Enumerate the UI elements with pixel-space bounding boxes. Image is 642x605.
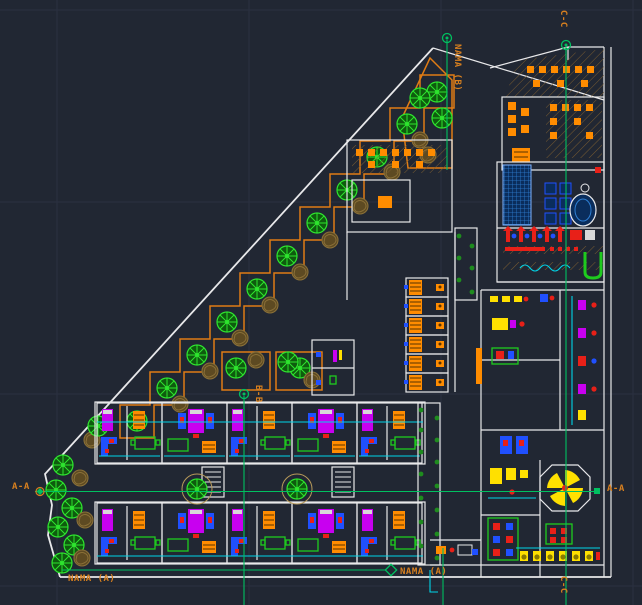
pool-area: [497, 162, 604, 282]
cad-viewport[interactable]: A-A A-A B-B C-C C-C NAMA (B) NAMA (A) NA…: [0, 0, 642, 605]
label-nama-a-left: NAMA (A): [68, 574, 115, 584]
bath-stack: [572, 296, 597, 425]
label-section-cc-top: C-C: [558, 10, 568, 28]
jacuzzi: [570, 167, 601, 226]
apartment-block: [95, 402, 425, 564]
label-section-bb: B-B: [253, 385, 263, 403]
restaurant-block: [502, 49, 604, 170]
kitchen: [488, 468, 536, 498]
spa-octagon: [540, 465, 590, 511]
mid-building: [312, 140, 455, 395]
toilet-row: [516, 548, 600, 561]
service-wing: [430, 290, 604, 577]
label-section-cc-bottom: C-C: [558, 576, 568, 594]
drawing-canvas[interactable]: A-A A-A B-B C-C C-C NAMA (B) NAMA (A) NA…: [0, 0, 642, 605]
small-rooms-west: [312, 340, 354, 395]
label-section-aa-right: A-A: [607, 484, 625, 494]
label-nama-a-mid: NAMA (A): [400, 567, 447, 577]
sauna-seats: [545, 183, 571, 224]
label-section-aa-left: A-A: [12, 482, 30, 492]
label-nama-b: NAMA (B): [452, 44, 462, 91]
